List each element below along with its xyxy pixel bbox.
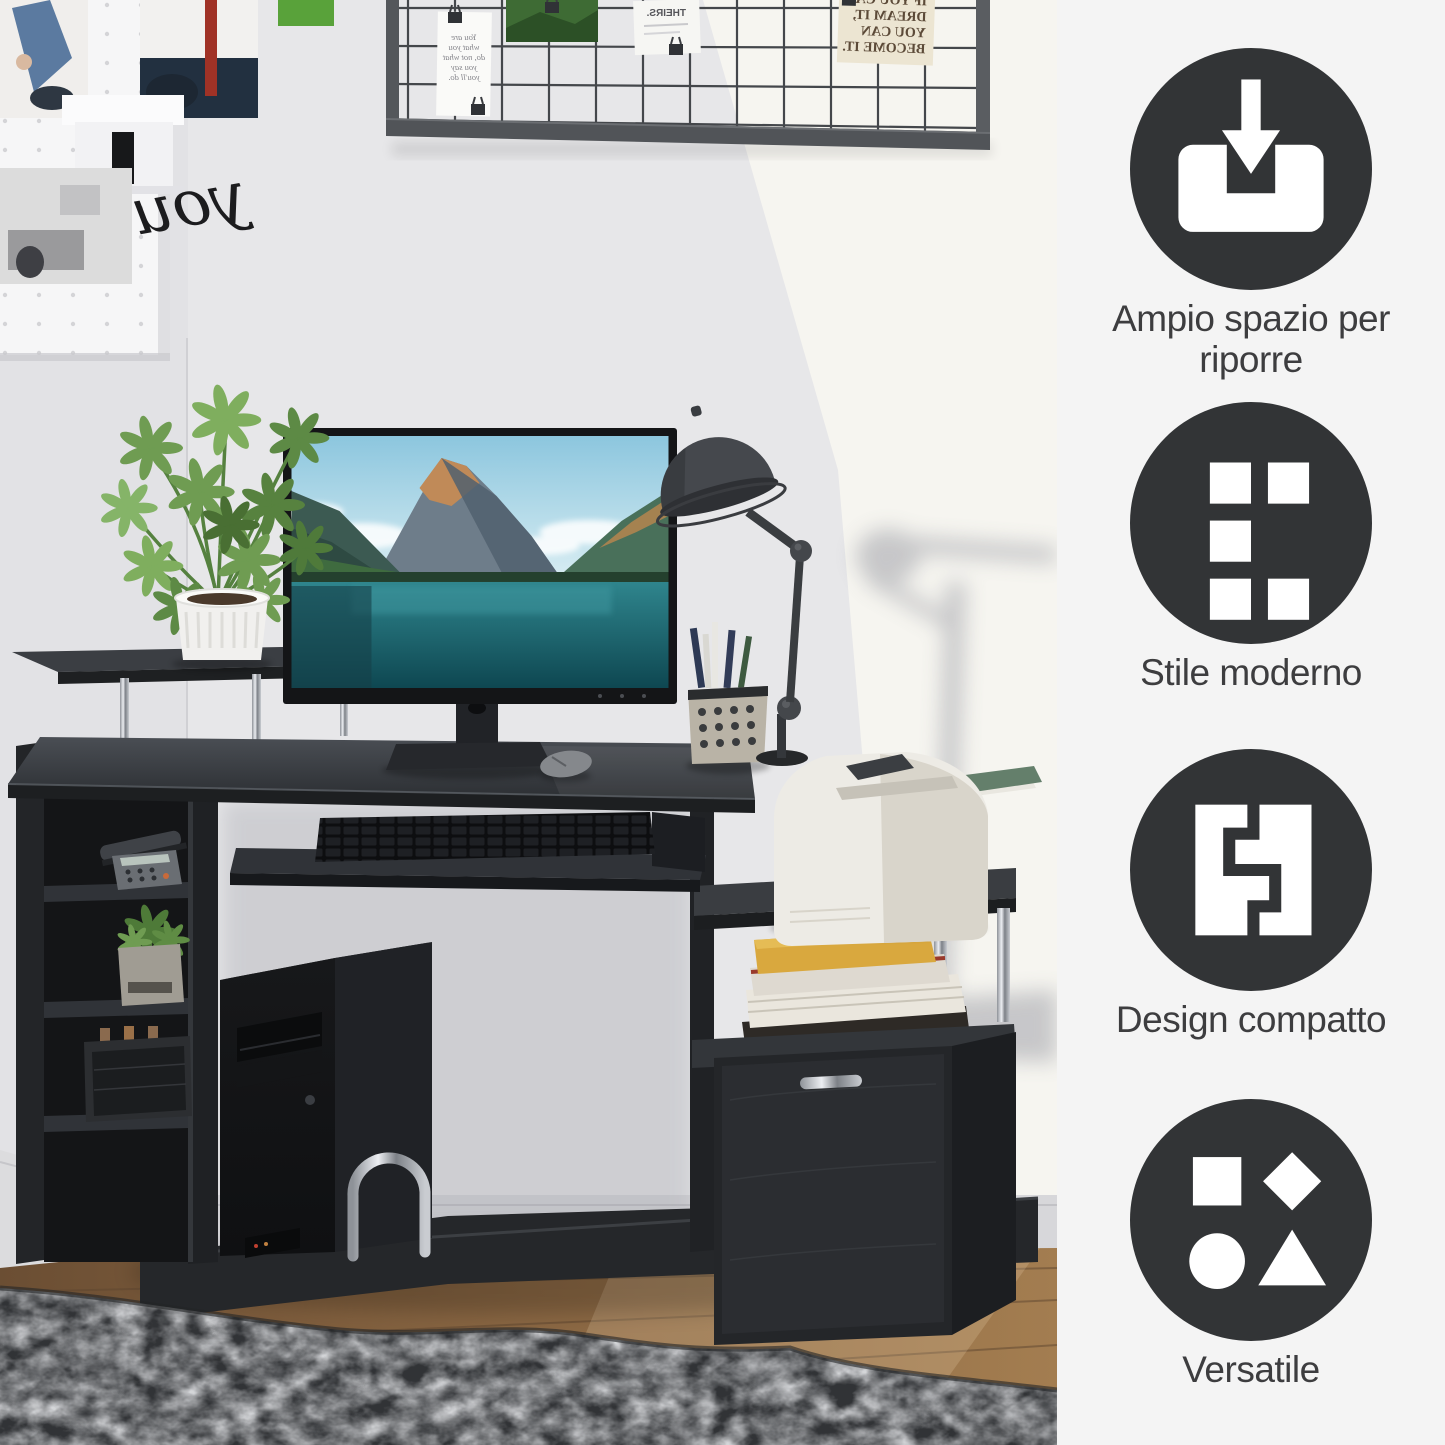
pc-tower — [220, 942, 432, 1258]
memo-note-line: you say — [451, 62, 478, 72]
squares-grid-icon — [1130, 402, 1372, 644]
memo-note-line: you'll do. — [448, 72, 481, 82]
file-drawer[interactable] — [722, 1054, 944, 1334]
product-page: You are what you do, not what you say yo… — [0, 0, 1445, 1445]
binder-clip-icon — [842, 0, 857, 6]
feature-storage: Ampio spazio per riporre — [1057, 48, 1445, 381]
feature-label: Stile moderno — [1105, 652, 1397, 693]
interlocking-blocks-icon — [1130, 749, 1372, 991]
chrome-post — [997, 908, 1010, 1022]
feature-versatile: Versatile — [1057, 1099, 1445, 1390]
pegboard-photo-3 — [0, 168, 132, 284]
poster-line: BECOME IT. — [842, 39, 925, 57]
speaker — [84, 1026, 192, 1122]
plant-pot — [175, 589, 269, 660]
feature-modern-style: Stile moderno — [1057, 402, 1445, 693]
feature-label: Design compatto — [1105, 999, 1397, 1040]
chrome-leg — [120, 678, 129, 748]
lamp-elbow — [790, 540, 812, 562]
feature-label: Versatile — [1105, 1349, 1397, 1390]
feature-panel: Ampio spazio per riporre Stile moderno — [1057, 0, 1445, 1445]
pegboard-green-card — [278, 0, 334, 26]
calculator — [112, 850, 182, 890]
memo-note-line: what you — [449, 42, 480, 52]
product-photo: You are what you do, not what you say yo… — [0, 0, 1057, 1445]
memo-note: You are what you do, not what you say yo… — [436, 5, 492, 116]
poster-line: DREAM IT, — [853, 8, 927, 26]
chrome-leg — [252, 674, 261, 748]
keyboard[interactable] — [315, 812, 655, 862]
memo-note-2: THEIRS. — [633, 0, 701, 55]
monitor-stand-base — [386, 742, 552, 770]
left-shelf-unit — [16, 740, 218, 1264]
geometric-shapes-icon — [1130, 1099, 1372, 1341]
power-button — [305, 1095, 315, 1105]
feature-compact-design: Design compatto — [1057, 749, 1445, 1040]
memo-photo — [506, 0, 598, 42]
memo-note-2-label: THEIRS. — [646, 8, 686, 19]
memo-note-line: do, not what — [442, 52, 485, 62]
poster-line: YOU CAN — [861, 24, 926, 41]
tray-arrow-down-icon — [1130, 48, 1372, 290]
memo-note-line: You are — [451, 32, 477, 42]
memo-poster: IF YOU CAN DREAM IT, YOU CAN BECOME IT. — [837, 0, 936, 66]
feature-label: Ampio spazio per riporre — [1105, 298, 1397, 381]
monitor-screen — [284, 436, 669, 688]
